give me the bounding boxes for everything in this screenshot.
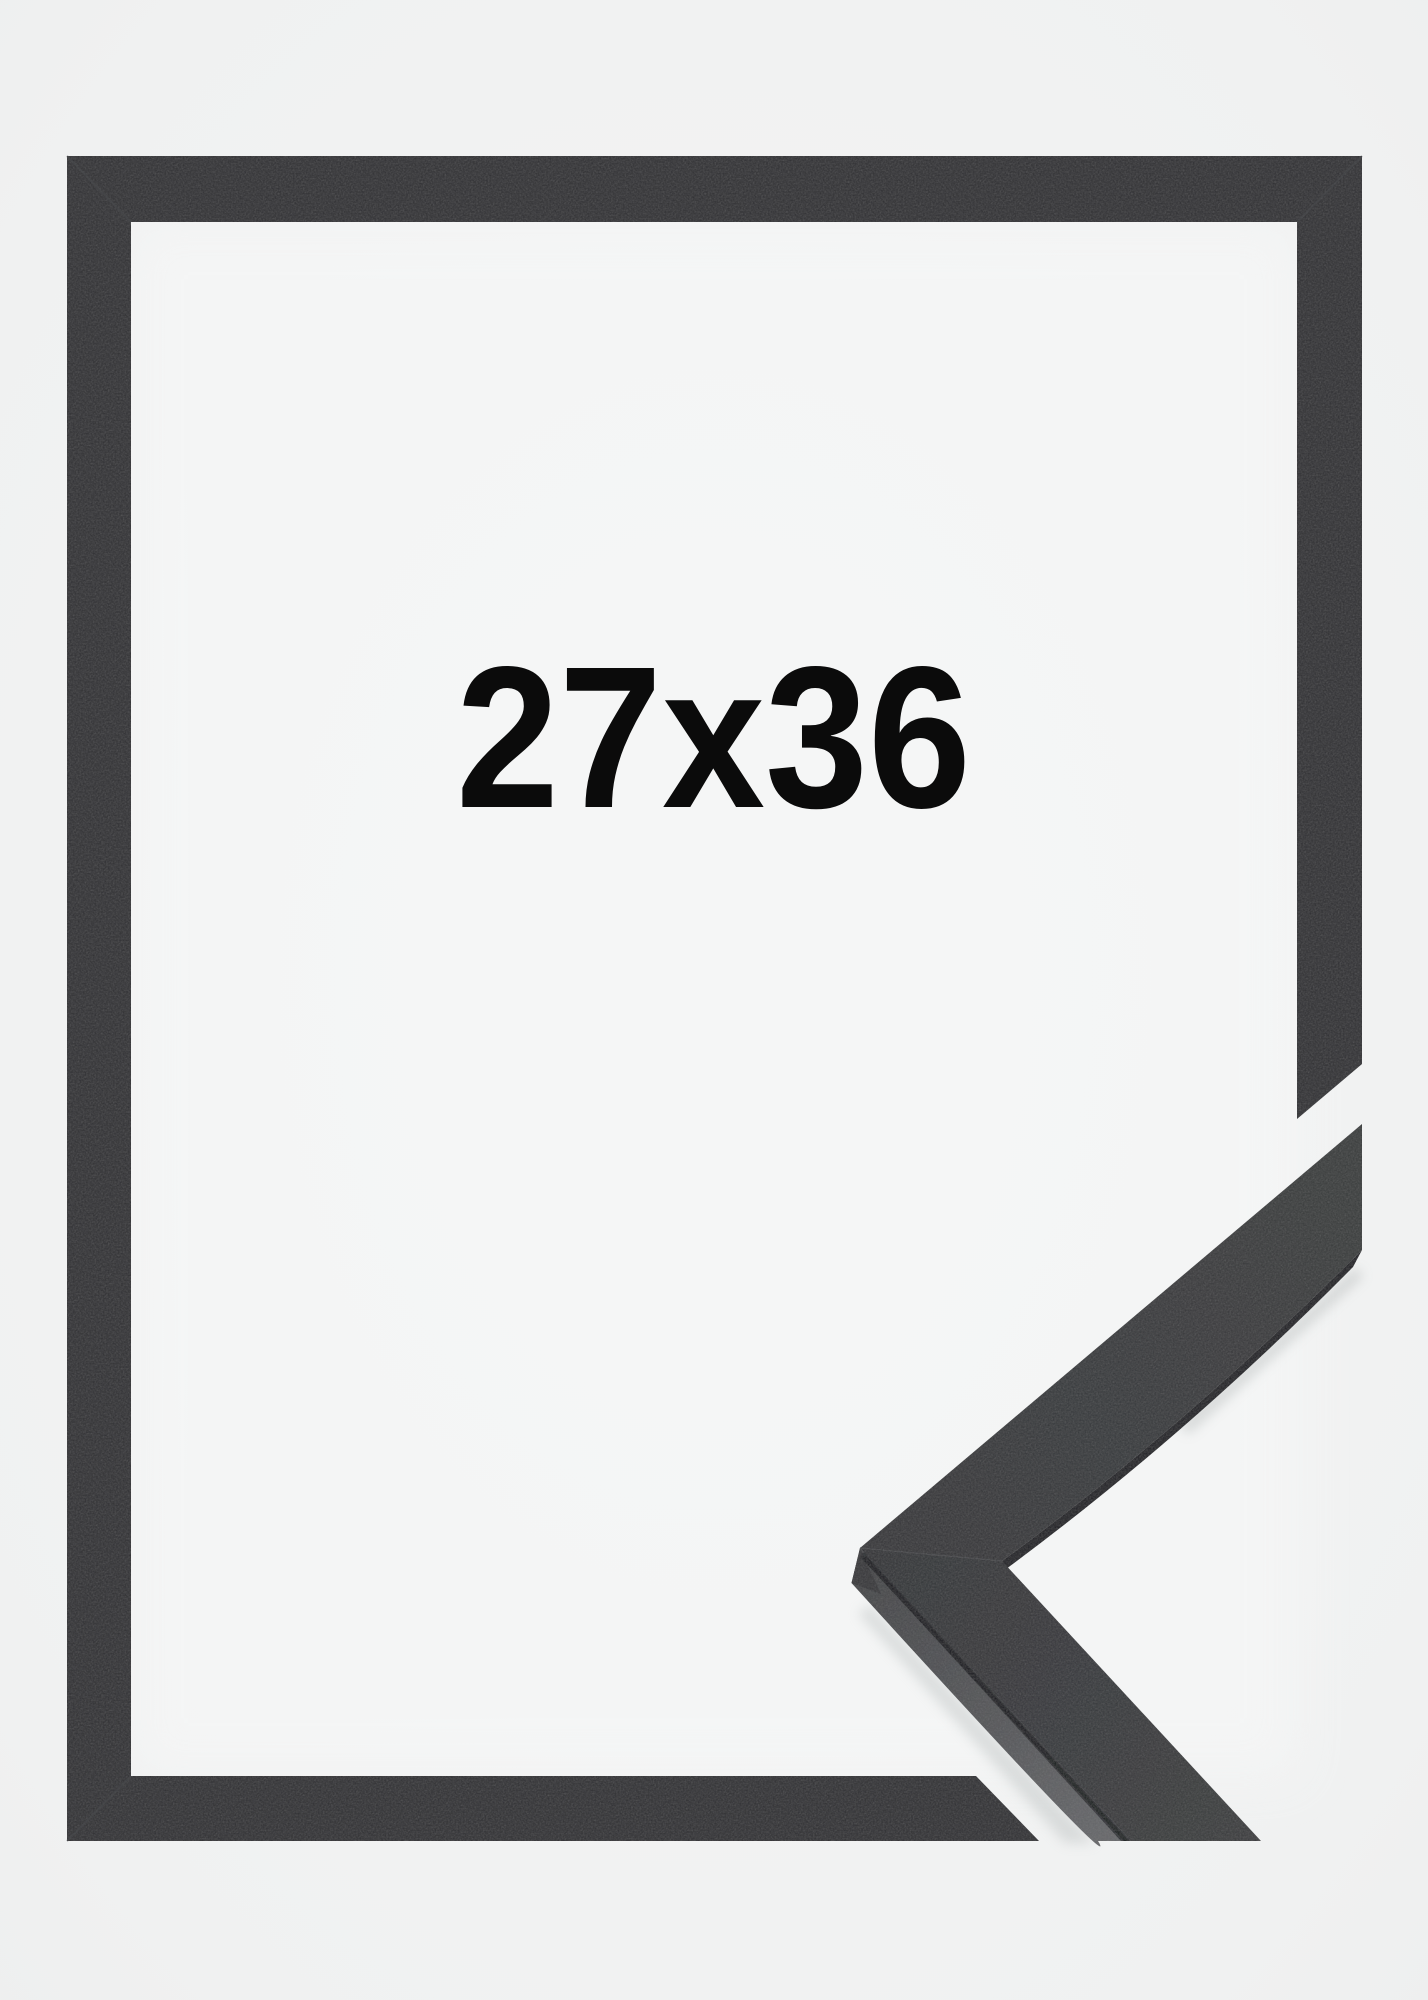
svg-text:27x36: 27x36	[456, 624, 971, 850]
